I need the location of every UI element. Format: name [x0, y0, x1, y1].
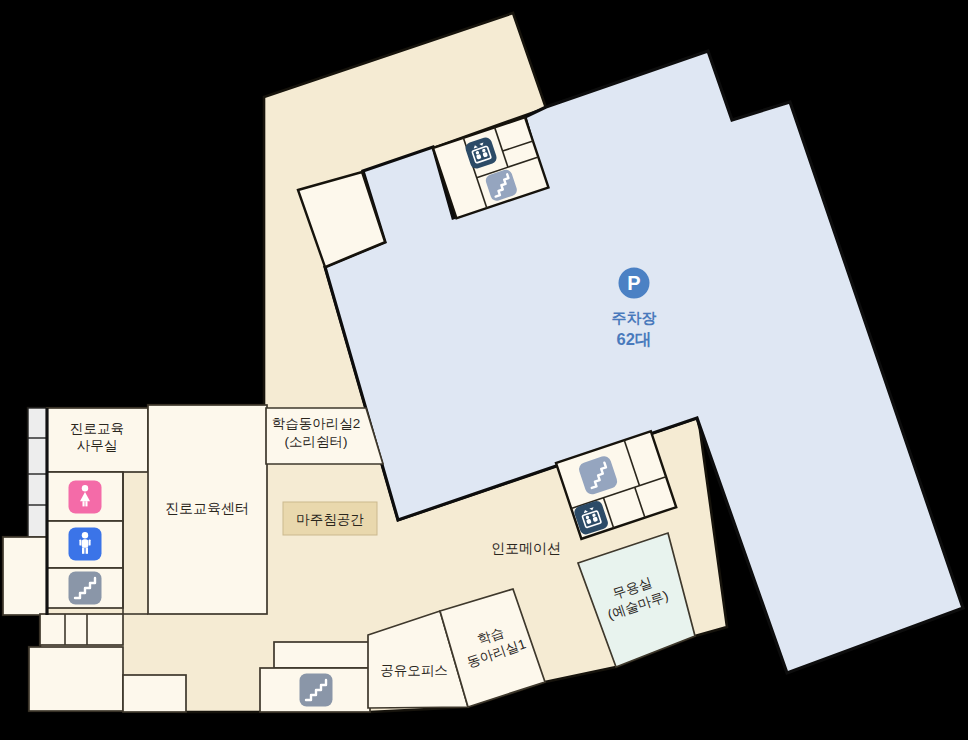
stairs-icon — [69, 572, 102, 605]
small-room-bottom — [123, 675, 186, 712]
annex-room-left — [3, 537, 47, 615]
exterior-stair-strip — [28, 408, 47, 537]
career-office-label-2: 사무실 — [77, 438, 118, 453]
parking-name: 주차장 — [612, 309, 657, 326]
shared-office-label: 공유오피스 — [380, 663, 448, 678]
study-club2-label-1: 학습동아리실2 — [272, 416, 361, 431]
floor-plan: P 주차장 62대 진로교육 사무실 진로교육센터 학습동아리실2 (소리쉼터)… — [0, 0, 968, 740]
career-center-label: 진로교육센터 — [165, 500, 249, 516]
storage-room-bottom-left — [29, 647, 123, 711]
meeting-space-label: 마주침공간 — [296, 512, 364, 527]
study-club2-label-2: (소리쉼터) — [285, 434, 348, 449]
room-above-stairwell — [274, 642, 370, 668]
parking-capacity: 62대 — [617, 330, 652, 348]
small-room-row — [40, 614, 123, 645]
male-toilet-icon — [69, 528, 102, 561]
parking-badge: P — [627, 272, 640, 294]
career-office-label-1: 진로교육 — [70, 421, 124, 436]
information-label: 인포메이션 — [491, 540, 561, 556]
stairs-icon — [300, 674, 333, 707]
female-toilet-icon — [69, 481, 102, 514]
